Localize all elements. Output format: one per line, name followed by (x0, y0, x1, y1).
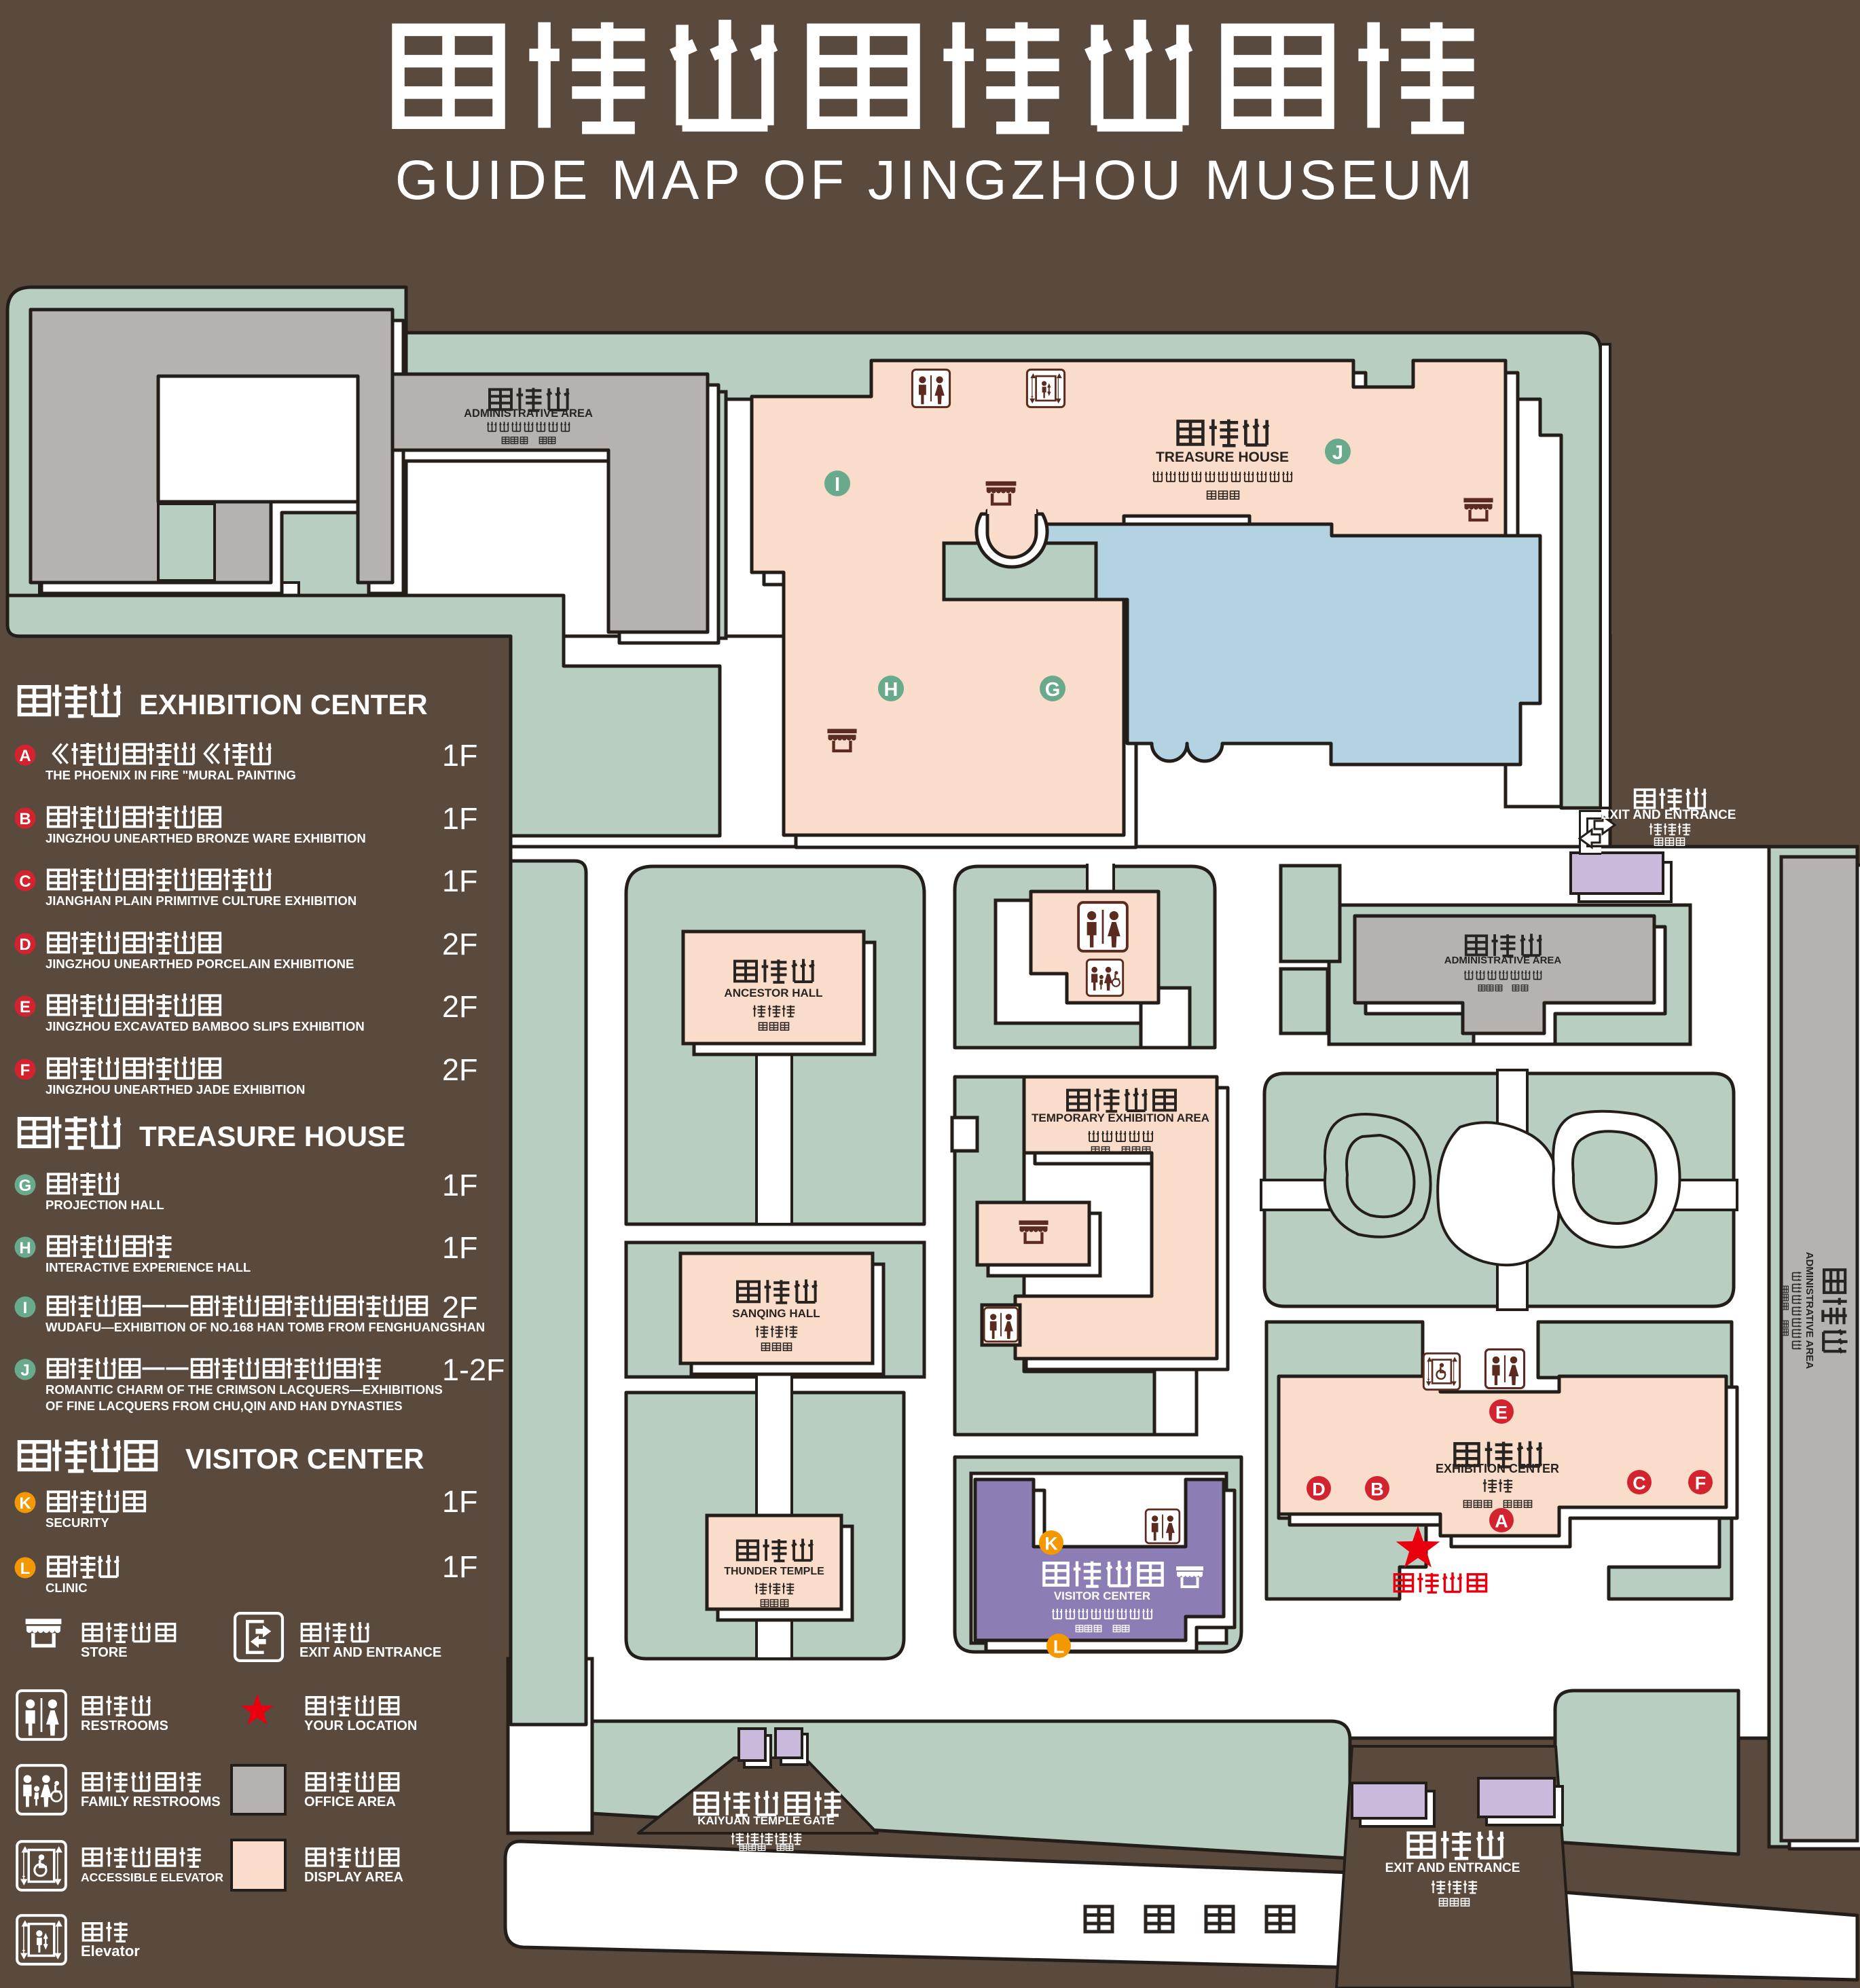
svg-text:EXHIBITION CENTER: EXHIBITION CENTER (1436, 1462, 1559, 1475)
svg-text:H: H (19, 1239, 31, 1257)
svg-text:A: A (1495, 1511, 1508, 1531)
svg-text:1F: 1F (442, 738, 478, 773)
svg-text:K: K (1044, 1533, 1058, 1553)
svg-text:SECURITY: SECURITY (45, 1515, 109, 1530)
svg-text:E: E (20, 998, 31, 1016)
svg-text:F: F (20, 1061, 31, 1080)
svg-text:KAIYUAN TEMPLE GATE: KAIYUAN TEMPLE GATE (697, 1814, 835, 1827)
svg-text:OF FINE LACQUERS FROM CHU,QIN: OF FINE LACQUERS FROM CHU,QIN AND HAN DY… (45, 1399, 403, 1413)
svg-text:YOUR LOCATION: YOUR LOCATION (304, 1718, 417, 1733)
svg-text:D: D (1312, 1479, 1326, 1499)
svg-text:B: B (19, 810, 31, 828)
svg-text:FAMILY RESTROOMS: FAMILY RESTROOMS (81, 1794, 221, 1809)
svg-text:L: L (1053, 1636, 1065, 1657)
svg-text:I: I (23, 1299, 28, 1317)
svg-text:L: L (20, 1560, 31, 1578)
svg-text:SANQING HALL: SANQING HALL (732, 1307, 820, 1320)
svg-text:ADMINISTRATIVE AREA: ADMINISTRATIVE AREA (1444, 955, 1562, 966)
svg-text:2F: 2F (442, 1290, 478, 1325)
svg-text:G: G (1045, 679, 1061, 701)
svg-text:VISITOR CENTER: VISITOR CENTER (185, 1443, 424, 1475)
svg-text:STORE: STORE (81, 1645, 128, 1660)
svg-text:WUDAFU—EXHIBITION OF NO.168 HA: WUDAFU—EXHIBITION OF NO.168 HAN TOMB FRO… (45, 1320, 485, 1334)
svg-text:1F: 1F (442, 1549, 478, 1584)
svg-text:ACCESSIBLE ELEVATOR: ACCESSIBLE ELEVATOR (81, 1871, 223, 1884)
svg-text:OFFICE AREA: OFFICE AREA (304, 1794, 396, 1809)
svg-text:JIANGHAN PLAIN PRIMITIVE CULTU: JIANGHAN PLAIN PRIMITIVE CULTURE EXHIBIT… (45, 894, 357, 908)
svg-text:JINGZHOU UNEARTHED PORCELAIN E: JINGZHOU UNEARTHED PORCELAIN EXHIBITIONE (45, 957, 354, 971)
svg-text:JINGZHOU UNEARTHED BRONZE WARE: JINGZHOU UNEARTHED BRONZE WARE EXHIBITIO… (45, 831, 366, 845)
svg-text:A: A (19, 747, 31, 765)
svg-text:PROJECTION HALL: PROJECTION HALL (45, 1198, 164, 1212)
svg-text:GUIDE MAP OF JINGZHOU MUSEUM: GUIDE MAP OF JINGZHOU MUSEUM (395, 149, 1476, 211)
svg-text:B: B (1370, 1479, 1384, 1499)
svg-text:C: C (1633, 1473, 1646, 1493)
svg-text:2F: 2F (442, 1052, 478, 1087)
svg-text:ADMINISTRATIVE AREA: ADMINISTRATIVE AREA (464, 407, 593, 420)
svg-text:TEMPORARY EXHIBITION AREA: TEMPORARY EXHIBITION AREA (1032, 1111, 1209, 1124)
svg-text:1F: 1F (442, 801, 478, 836)
svg-text:2F: 2F (442, 927, 478, 961)
svg-text:CLINIC: CLINIC (45, 1581, 88, 1595)
svg-text:1F: 1F (442, 864, 478, 898)
svg-text:ADMINISTRATIVE AREA: ADMINISTRATIVE AREA (1804, 1252, 1815, 1369)
svg-text:JINGZHOU UNEARTHED JADE EXHIBI: JINGZHOU UNEARTHED JADE EXHIBITION (45, 1082, 305, 1097)
svg-text:1F: 1F (442, 1168, 478, 1202)
svg-text:2F: 2F (442, 989, 478, 1024)
svg-text:THUNDER TEMPLE: THUNDER TEMPLE (724, 1566, 824, 1577)
svg-text:D: D (19, 936, 31, 954)
svg-text:EXHIBITION CENTER: EXHIBITION CENTER (139, 688, 428, 720)
svg-text:1-2F: 1-2F (442, 1352, 505, 1387)
svg-text:1F: 1F (442, 1484, 478, 1519)
svg-text:VISITOR CENTER: VISITOR CENTER (1054, 1589, 1150, 1602)
svg-text:K: K (19, 1494, 31, 1513)
svg-text:INTERACTIVE EXPERIENCE HALL: INTERACTIVE EXPERIENCE HALL (45, 1260, 251, 1274)
svg-text:J: J (20, 1361, 29, 1380)
svg-text:EXIT AND ENTRANCE: EXIT AND ENTRANCE (299, 1645, 441, 1660)
svg-text:THE PHOENIX IN FIRE "MURAL PAI: THE PHOENIX IN FIRE "MURAL PAINTING (45, 768, 296, 782)
svg-text:H: H (884, 679, 898, 701)
svg-text:EXIT AND ENTRANCE: EXIT AND ENTRANCE (1601, 808, 1736, 822)
svg-text:TREASURE HOUSE: TREASURE HOUSE (1156, 449, 1289, 465)
svg-text:J: J (1332, 442, 1343, 464)
svg-text:ANCESTOR HALL: ANCESTOR HALL (724, 987, 822, 999)
svg-text:G: G (19, 1177, 32, 1195)
svg-text:I: I (835, 474, 840, 496)
svg-text:JINGZHOU EXCAVATED BAMBOO SLIP: JINGZHOU EXCAVATED BAMBOO SLIPS EXHIBITI… (45, 1019, 365, 1033)
svg-text:ROMANTIC CHARM OF THE CRIMSON: ROMANTIC CHARM OF THE CRIMSON LACQUERS—E… (45, 1382, 443, 1397)
svg-text:F: F (1695, 1473, 1707, 1493)
svg-text:Elevator: Elevator (81, 1943, 140, 1959)
svg-text:TREASURE HOUSE: TREASURE HOUSE (139, 1120, 405, 1152)
svg-text:1F: 1F (442, 1230, 478, 1265)
svg-text:E: E (1495, 1402, 1508, 1422)
svg-text:DISPLAY AREA: DISPLAY AREA (304, 1870, 403, 1885)
svg-text:EXIT AND ENTRANCE: EXIT AND ENTRANCE (1385, 1861, 1520, 1875)
svg-text:RESTROOMS: RESTROOMS (81, 1718, 168, 1733)
svg-text:C: C (19, 872, 31, 891)
